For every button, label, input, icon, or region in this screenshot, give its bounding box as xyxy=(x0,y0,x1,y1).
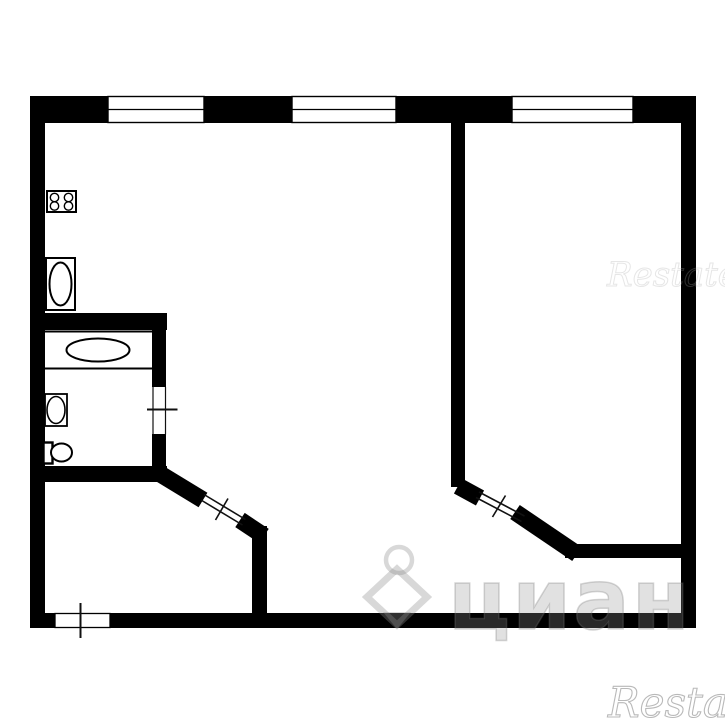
watermark-restate-bottom: Restate xyxy=(607,678,725,725)
sink-icon xyxy=(45,394,67,426)
floorplan-drawing: Restate циан Restate xyxy=(0,0,725,725)
bathtub-icon xyxy=(44,332,153,369)
stove-icon-part xyxy=(50,193,58,201)
stove-icon-part xyxy=(64,202,72,210)
entry-door-opening xyxy=(55,614,110,628)
toilet-icon xyxy=(44,443,73,464)
toilet-icon-part xyxy=(51,444,72,462)
hall-door-leaf-a xyxy=(204,495,246,520)
stove-icon-part xyxy=(50,202,58,210)
sink-icon-part xyxy=(47,397,65,424)
watermark-layer: Restate циан Restate xyxy=(367,255,725,725)
outer-wall-left xyxy=(30,96,45,628)
wall-bedroom-diagonal xyxy=(515,512,577,554)
floorplan-page: Restate циан Restate xyxy=(0,0,725,725)
wall-bathroom-bottom xyxy=(45,466,167,482)
bedroom-door-tick xyxy=(493,496,506,518)
bathtub-icon-part xyxy=(67,339,130,362)
watermark-cian: циан xyxy=(448,551,692,649)
refrigerator-icon-part xyxy=(50,263,72,306)
stove-icon xyxy=(47,191,76,212)
wall-hall-diagonal xyxy=(157,472,203,500)
wall-bedroom-door-stub xyxy=(458,486,480,498)
wall-bathroom-top xyxy=(45,313,167,330)
bedroom-door-leaf-a xyxy=(479,492,525,516)
watermark-restate-top: Restate xyxy=(606,255,725,295)
wall-bathroom-right-lower xyxy=(152,434,166,466)
wall-bathroom-right-upper xyxy=(152,330,166,387)
outer-wall-right xyxy=(681,96,696,628)
bedroom-door-leaf-b xyxy=(476,498,522,522)
wall-main-divider xyxy=(451,123,465,487)
stove-icon-part xyxy=(64,193,72,201)
hall-door-leaf-b xyxy=(201,500,243,525)
wall-hall-diagonal-stub xyxy=(240,520,264,536)
refrigerator-icon xyxy=(46,258,75,310)
